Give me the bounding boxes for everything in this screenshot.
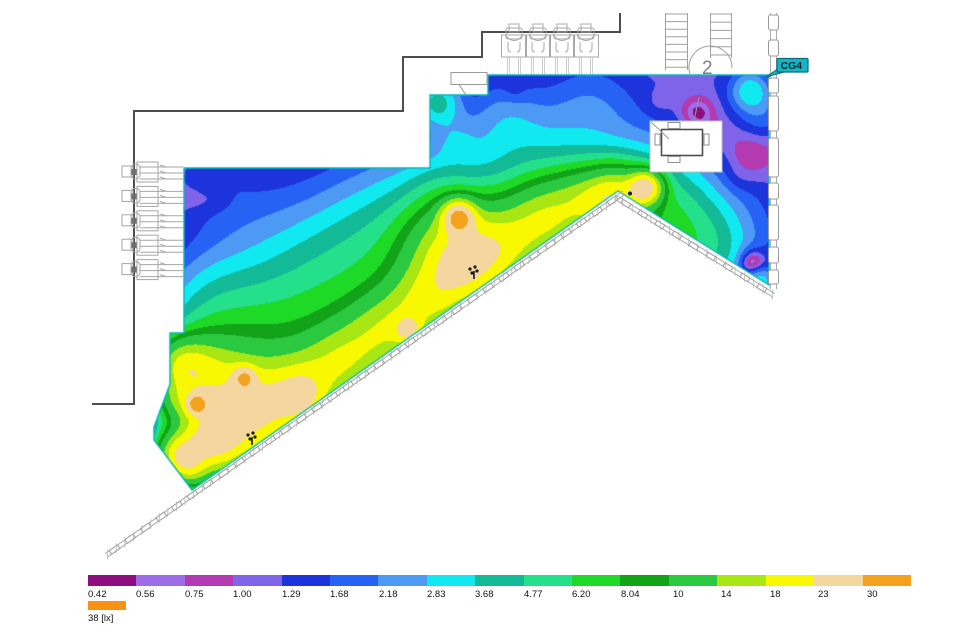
svg-text:2: 2 [702, 58, 713, 79]
svg-text:CG4: CG4 [781, 60, 803, 72]
